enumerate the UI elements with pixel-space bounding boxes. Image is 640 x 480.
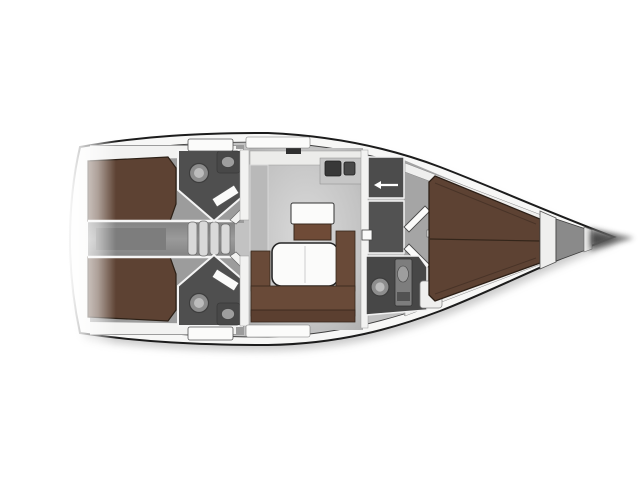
sideboard-top xyxy=(291,203,334,224)
salon-wall-aft-top xyxy=(240,150,249,220)
deck-hatch-port xyxy=(246,137,310,148)
bow-bulkhead xyxy=(540,211,556,269)
yacht-deck-plan xyxy=(0,0,640,480)
toilet-bowl-icon xyxy=(375,282,384,291)
column-footer xyxy=(397,292,410,301)
sofa-backrest xyxy=(251,310,355,322)
companionway-hatch-mark xyxy=(286,148,301,154)
deck-hatch-starboard xyxy=(246,325,310,337)
salon-wall-aft-bottom xyxy=(240,256,249,326)
galley-counter-side xyxy=(250,165,268,251)
sofa-left-arm xyxy=(251,251,270,291)
sideboard-base xyxy=(294,224,331,240)
galley-sink-large xyxy=(325,161,341,176)
toilet-bowl-icon xyxy=(194,298,204,308)
sofa-right-arm xyxy=(336,231,355,291)
wall-panel xyxy=(362,230,372,240)
sink-basin-icon xyxy=(398,266,409,282)
sink-basin-icon xyxy=(222,309,235,320)
deck-plan-svg xyxy=(0,0,640,480)
stern-fade xyxy=(34,112,116,372)
wardrobe-room xyxy=(368,157,404,198)
deck-locker-starboard-aft xyxy=(188,327,233,340)
locker-room xyxy=(368,201,404,253)
toilet-bowl-icon xyxy=(194,168,204,178)
sink-basin-icon xyxy=(222,157,235,168)
galley-sink-small xyxy=(344,162,355,175)
deck-locker-port-aft xyxy=(188,139,233,151)
